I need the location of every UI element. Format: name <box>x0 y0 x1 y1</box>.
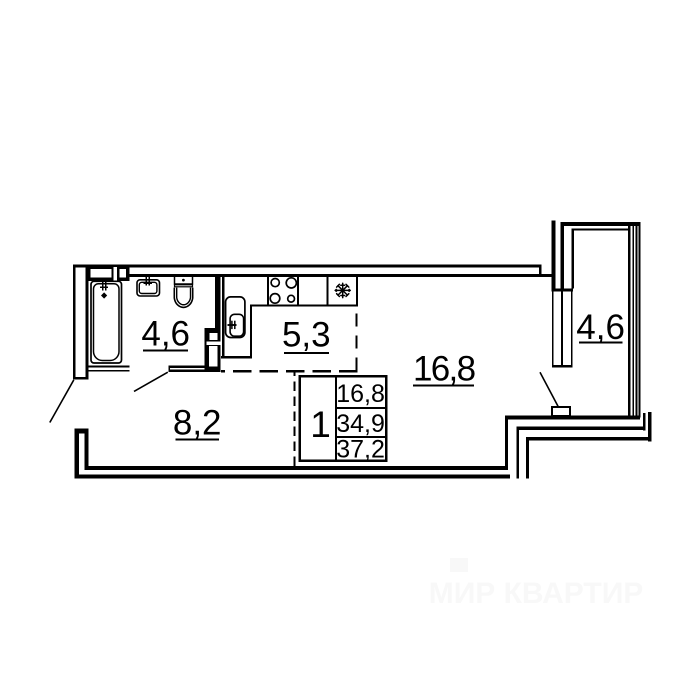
svg-text:4,6: 4,6 <box>141 314 190 353</box>
svg-text:5,3: 5,3 <box>282 316 331 355</box>
svg-text:16,8: 16,8 <box>413 349 475 388</box>
svg-text:8,2: 8,2 <box>173 403 222 442</box>
svg-text:16,8: 16,8 <box>336 380 385 408</box>
svg-text:34,9: 34,9 <box>336 410 385 438</box>
svg-text:4,6: 4,6 <box>576 308 625 347</box>
svg-text:МИР КВАРТИР: МИР КВАРТИР <box>429 577 644 610</box>
svg-text:37,2: 37,2 <box>336 436 385 464</box>
svg-text:1: 1 <box>310 404 331 445</box>
